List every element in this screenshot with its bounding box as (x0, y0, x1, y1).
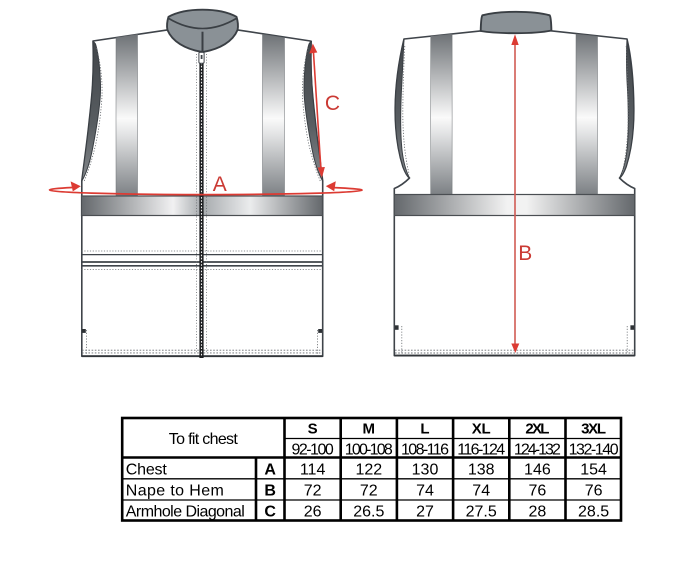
svg-text:28: 28 (529, 503, 547, 520)
svg-text:Nape to Hem: Nape to Hem (126, 483, 224, 500)
svg-text:122: 122 (355, 461, 382, 478)
svg-text:154: 154 (580, 461, 607, 478)
svg-text:108-116: 108-116 (401, 441, 449, 458)
svg-text:27: 27 (416, 503, 434, 520)
svg-text:L: L (420, 420, 429, 437)
svg-text:C: C (264, 503, 276, 520)
svg-text:76: 76 (585, 483, 603, 500)
svg-text:M: M (363, 420, 376, 437)
svg-text:A: A (264, 461, 276, 478)
svg-text:114: 114 (300, 461, 326, 478)
svg-text:76: 76 (529, 483, 547, 500)
svg-text:26: 26 (304, 503, 322, 520)
svg-text:146: 146 (524, 461, 551, 478)
svg-text:Chest: Chest (126, 461, 168, 478)
svg-text:To fit chest: To fit chest (169, 431, 239, 448)
svg-text:92-100: 92-100 (291, 441, 333, 458)
svg-text:S: S (308, 420, 318, 437)
svg-text:116-124: 116-124 (457, 441, 505, 458)
svg-text:26.5: 26.5 (353, 503, 384, 520)
svg-text:74: 74 (472, 483, 490, 500)
svg-text:XL: XL (472, 420, 491, 437)
svg-text:124-132: 124-132 (514, 441, 561, 458)
svg-text:C: C (325, 92, 340, 115)
svg-text:132-140: 132-140 (569, 441, 619, 458)
svg-text:28.5: 28.5 (578, 503, 609, 520)
svg-text:74: 74 (416, 483, 434, 500)
svg-text:130: 130 (412, 461, 439, 478)
svg-text:2XL: 2XL (525, 420, 549, 437)
svg-text:72: 72 (304, 483, 322, 500)
svg-text:100-108: 100-108 (345, 441, 393, 458)
svg-text:27.5: 27.5 (466, 503, 497, 520)
svg-text:72: 72 (360, 483, 378, 500)
svg-text:A: A (213, 173, 227, 196)
svg-text:3XL: 3XL (581, 420, 606, 437)
svg-text:B: B (264, 483, 276, 500)
svg-text:Armhole Diagonal: Armhole Diagonal (126, 503, 245, 520)
svg-text:138: 138 (468, 461, 495, 478)
svg-text:B: B (518, 242, 532, 265)
